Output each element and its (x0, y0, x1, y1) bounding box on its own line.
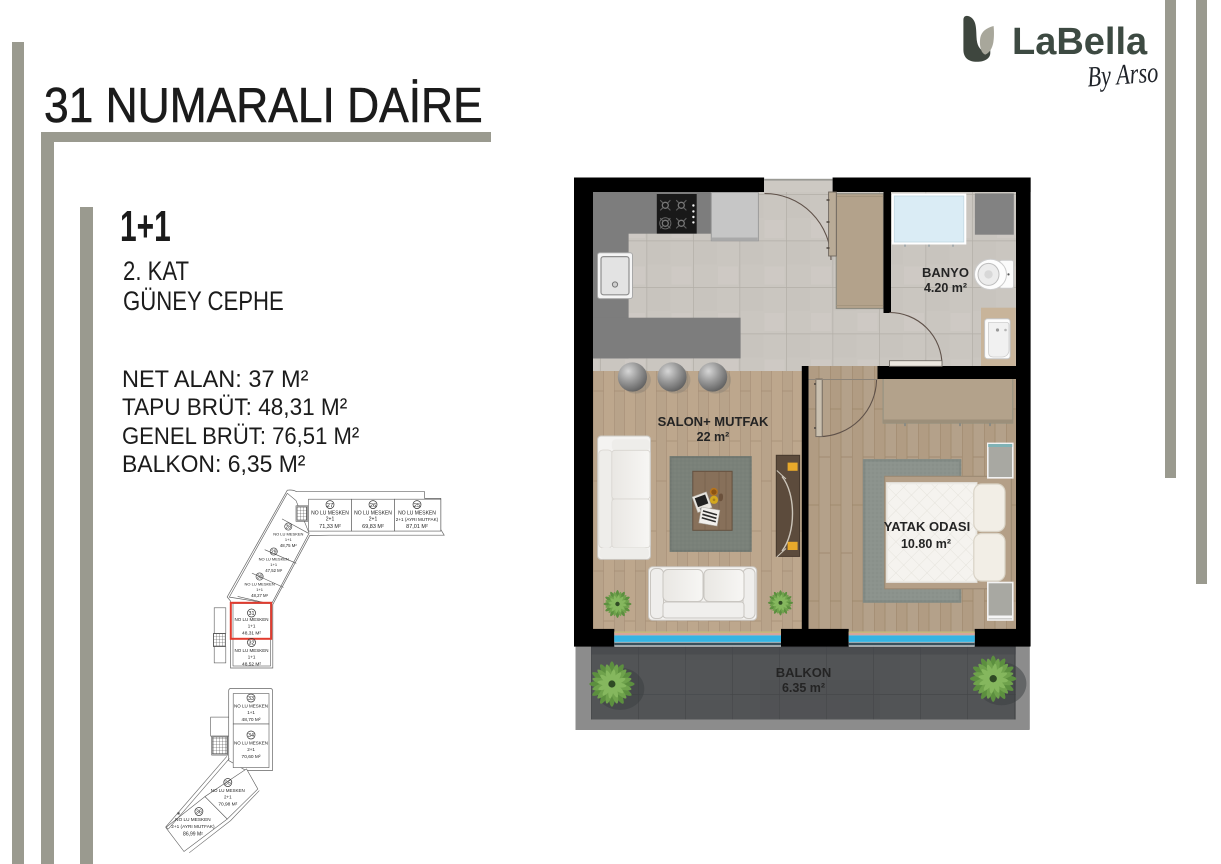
svg-text:NO LU MESKEN: NO LU MESKEN (234, 648, 268, 653)
svg-text:33: 33 (248, 696, 254, 702)
svg-text:NO LU MESKEN: NO LU MESKEN (234, 704, 268, 709)
svg-text:LaBella: LaBella (1012, 21, 1148, 63)
svg-text:By Arso: By Arso (1086, 57, 1159, 94)
svg-text:87,01 M²: 87,01 M² (406, 524, 428, 530)
svg-text:1+1: 1+1 (270, 562, 278, 567)
svg-text:BALKON: BALKON (776, 665, 832, 680)
svg-text:2+1: 2+1 (247, 747, 255, 752)
svg-text:35: 35 (225, 780, 231, 786)
svg-text:47,52 M²: 47,52 M² (265, 568, 283, 573)
svg-text:NO LU MESKEN: NO LU MESKEN (234, 741, 268, 746)
svg-text:22 m²: 22 m² (697, 430, 730, 444)
svg-text:6.35 m²: 6.35 m² (782, 681, 825, 695)
svg-text:4.20 m²: 4.20 m² (924, 281, 967, 295)
svg-text:NO LU MESKEN: NO LU MESKEN (398, 511, 436, 517)
svg-text:36: 36 (196, 809, 202, 815)
svg-text:48,52 M²: 48,52 M² (242, 662, 261, 668)
svg-text:2+1: 2+1 (224, 795, 232, 800)
svg-text:28: 28 (286, 524, 292, 530)
svg-text:YATAK ODASI: YATAK ODASI (884, 519, 970, 534)
svg-text:NO LU MESKEN: NO LU MESKEN (234, 617, 268, 622)
svg-text:NO LU MESKEN: NO LU MESKEN (211, 788, 245, 793)
svg-text:1+1: 1+1 (248, 655, 256, 660)
svg-text:31: 31 (249, 611, 255, 617)
svg-text:NO LU MESKEN: NO LU MESKEN (273, 532, 303, 537)
svg-text:86,99 M²: 86,99 M² (183, 832, 203, 838)
svg-text:BANYO: BANYO (922, 265, 969, 280)
svg-text:27: 27 (327, 503, 333, 509)
svg-text:70,60 M²: 70,60 M² (242, 754, 261, 760)
svg-text:70,98 M²: 70,98 M² (218, 802, 237, 808)
svg-text:29: 29 (271, 549, 277, 555)
svg-text:1+1: 1+1 (248, 624, 256, 629)
svg-text:48,75 M²: 48,75 M² (280, 543, 298, 548)
svg-text:34: 34 (248, 733, 254, 739)
svg-text:10.80 m²: 10.80 m² (901, 537, 951, 551)
svg-text:30: 30 (257, 574, 263, 580)
svg-text:25: 25 (414, 503, 420, 509)
svg-text:1+1: 1+1 (247, 710, 255, 715)
svg-text:1+1: 1+1 (256, 587, 264, 592)
svg-text:NO LU MESKEN: NO LU MESKEN (244, 582, 274, 587)
svg-text:71,33 M²: 71,33 M² (319, 524, 341, 530)
svg-text:NO LU MESKEN: NO LU MESKEN (175, 817, 210, 822)
svg-text:2+1: 2+1 (369, 517, 378, 523)
svg-text:26: 26 (370, 503, 376, 509)
svg-text:69,83 M²: 69,83 M² (362, 524, 384, 530)
svg-text:32: 32 (249, 640, 255, 646)
svg-text:SALON+ MUTFAK: SALON+ MUTFAK (658, 414, 769, 429)
svg-text:2+1 (AYRI MUTFAK): 2+1 (AYRI MUTFAK) (171, 824, 215, 829)
svg-text:48,70 M²: 48,70 M² (242, 717, 261, 723)
svg-text:48,27 M²: 48,27 M² (251, 593, 269, 598)
svg-text:1+1: 1+1 (285, 537, 293, 542)
svg-text:NO LU MESKEN: NO LU MESKEN (259, 557, 289, 562)
svg-text:2+1: 2+1 (326, 517, 335, 523)
svg-text:2+1 (AYRI MUTFAK): 2+1 (AYRI MUTFAK) (396, 517, 439, 522)
svg-text:48,31 M²: 48,31 M² (242, 631, 261, 637)
